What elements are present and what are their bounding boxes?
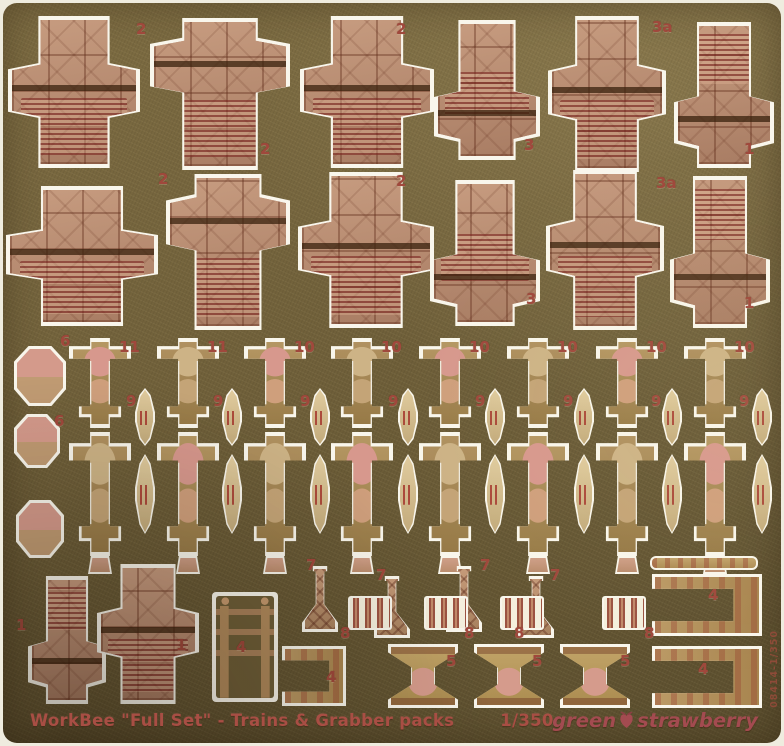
etched-part-pins [348, 596, 392, 630]
part-number-label: 5 [620, 654, 630, 669]
etched-part-pins [424, 596, 468, 630]
photo-etch-fret-photo: 22233a12233a1661111101010101010999999991… [0, 0, 784, 746]
etched-part-spindle [485, 454, 505, 534]
etched-part-totem [157, 432, 219, 556]
etched-part-container [6, 186, 158, 326]
etched-part-container [298, 172, 434, 328]
etched-part-spindle [135, 388, 155, 446]
part-number-label: 7 [480, 558, 490, 573]
etched-part-totem [331, 432, 393, 556]
etched-part-totem [69, 432, 131, 556]
etched-part-stub [350, 556, 374, 574]
etched-part-stub [263, 556, 287, 574]
part-number-label: 4 [708, 588, 718, 603]
etched-part-spindle [662, 388, 682, 446]
part-number-label: 10 [381, 340, 402, 355]
etched-part-spindle [485, 388, 505, 446]
part-number-label: 1 [744, 142, 754, 157]
part-number-label: 7 [550, 568, 560, 583]
part-number-label: 8 [644, 626, 654, 641]
etched-part-spindle [310, 454, 330, 534]
part-number-label: 4 [326, 670, 336, 685]
part-number-label: 10 [294, 340, 315, 355]
part-number-label: 9 [475, 394, 485, 409]
part-number-label: 3 [526, 292, 536, 307]
etched-part-cup [14, 346, 66, 406]
etched-part-totem [507, 432, 569, 556]
brand-word-strawberry: strawberry [637, 709, 758, 732]
etched-part-totem [684, 432, 746, 556]
part-number-label: 11 [119, 340, 140, 355]
etched-part-spindle [222, 454, 242, 534]
etched-part-tower [302, 566, 338, 632]
part-number-label: 3a [652, 20, 673, 35]
part-number-label: 1 [176, 638, 186, 653]
etched-part-container [670, 176, 770, 328]
part-number-label: 8 [340, 626, 350, 641]
etched-part-container [8, 16, 140, 168]
etched-part-bar [650, 556, 758, 570]
etched-part-container [300, 16, 434, 168]
etched-part-container [166, 174, 290, 330]
sheet-caption: WorkBee "Full Set" - Trains & Grabber pa… [30, 711, 554, 730]
etched-part-stub [88, 556, 112, 574]
etched-part-stub [526, 556, 550, 574]
brand-word-green: green [552, 709, 616, 732]
etched-part-spindle [398, 388, 418, 446]
part-number-label: 3 [524, 138, 534, 153]
etched-part-stub [176, 556, 200, 574]
part-number-label: 10 [734, 340, 755, 355]
sheet-scale: 1/350 [500, 711, 553, 730]
etched-part-stub [615, 556, 639, 574]
etched-part-totem [244, 432, 306, 556]
part-number-label: 9 [739, 394, 749, 409]
part-number-label: 9 [213, 394, 223, 409]
part-number-label: 8 [514, 626, 524, 641]
part-number-label: 4 [236, 640, 246, 655]
etched-part-stub [438, 556, 462, 574]
etched-part-spindle [752, 454, 772, 534]
etched-part-container [28, 576, 106, 704]
part-number-label: 10 [557, 340, 578, 355]
part-number-label: 4 [698, 662, 708, 677]
part-number-label: 10 [469, 340, 490, 355]
strawberry-icon [618, 710, 635, 729]
etched-part-spindle [752, 388, 772, 446]
part-number-label: 7 [306, 558, 316, 573]
etched-part-container [546, 170, 664, 330]
part-number-label: 6 [60, 334, 70, 349]
etched-part-container [674, 22, 774, 168]
part-number-label: 5 [532, 654, 542, 669]
part-number-label: 1 [744, 296, 754, 311]
part-number-label: 9 [300, 394, 310, 409]
part-number-label: 2 [136, 22, 146, 37]
part-number-label: 6 [54, 414, 64, 429]
sheet-title: WorkBee "Full Set" - Trains & Grabber pa… [30, 711, 454, 730]
etched-part-container [430, 180, 540, 326]
part-number-label: 3a [656, 176, 677, 191]
edge-product-code: 08414-1/350 [769, 630, 780, 708]
etched-part-spindle [310, 388, 330, 446]
part-number-label: 2 [396, 22, 406, 37]
part-number-label: 9 [126, 394, 136, 409]
etched-part-cup [16, 500, 64, 558]
parts-layer: 22233a12233a1661111101010101010999999991… [0, 0, 784, 746]
part-number-label: 9 [563, 394, 573, 409]
etched-part-spindle [398, 454, 418, 534]
part-number-label: 10 [646, 340, 667, 355]
etched-part-spindle [662, 454, 682, 534]
part-number-label: 9 [388, 394, 398, 409]
etched-part-cbracket [652, 574, 762, 636]
part-number-label: 11 [207, 340, 228, 355]
etched-part-spindle [135, 454, 155, 534]
part-number-label: 1 [16, 618, 26, 633]
etched-part-totem [419, 432, 481, 556]
part-number-label: 5 [446, 654, 456, 669]
part-number-label: 2 [396, 174, 406, 189]
part-number-label: 8 [464, 626, 474, 641]
etched-part-totem [596, 432, 658, 556]
part-number-label: 9 [651, 394, 661, 409]
etched-part-container [548, 16, 666, 172]
etched-part-container [97, 564, 199, 704]
part-number-label: 2 [260, 142, 270, 157]
etched-part-pins [602, 596, 646, 630]
part-number-label: 2 [158, 172, 168, 187]
etched-part-spindle [574, 454, 594, 534]
part-number-label: 7 [376, 568, 386, 583]
brand-logo: green strawberry [552, 709, 758, 732]
etched-part-spindle [574, 388, 594, 446]
etched-part-spindle [222, 388, 242, 446]
